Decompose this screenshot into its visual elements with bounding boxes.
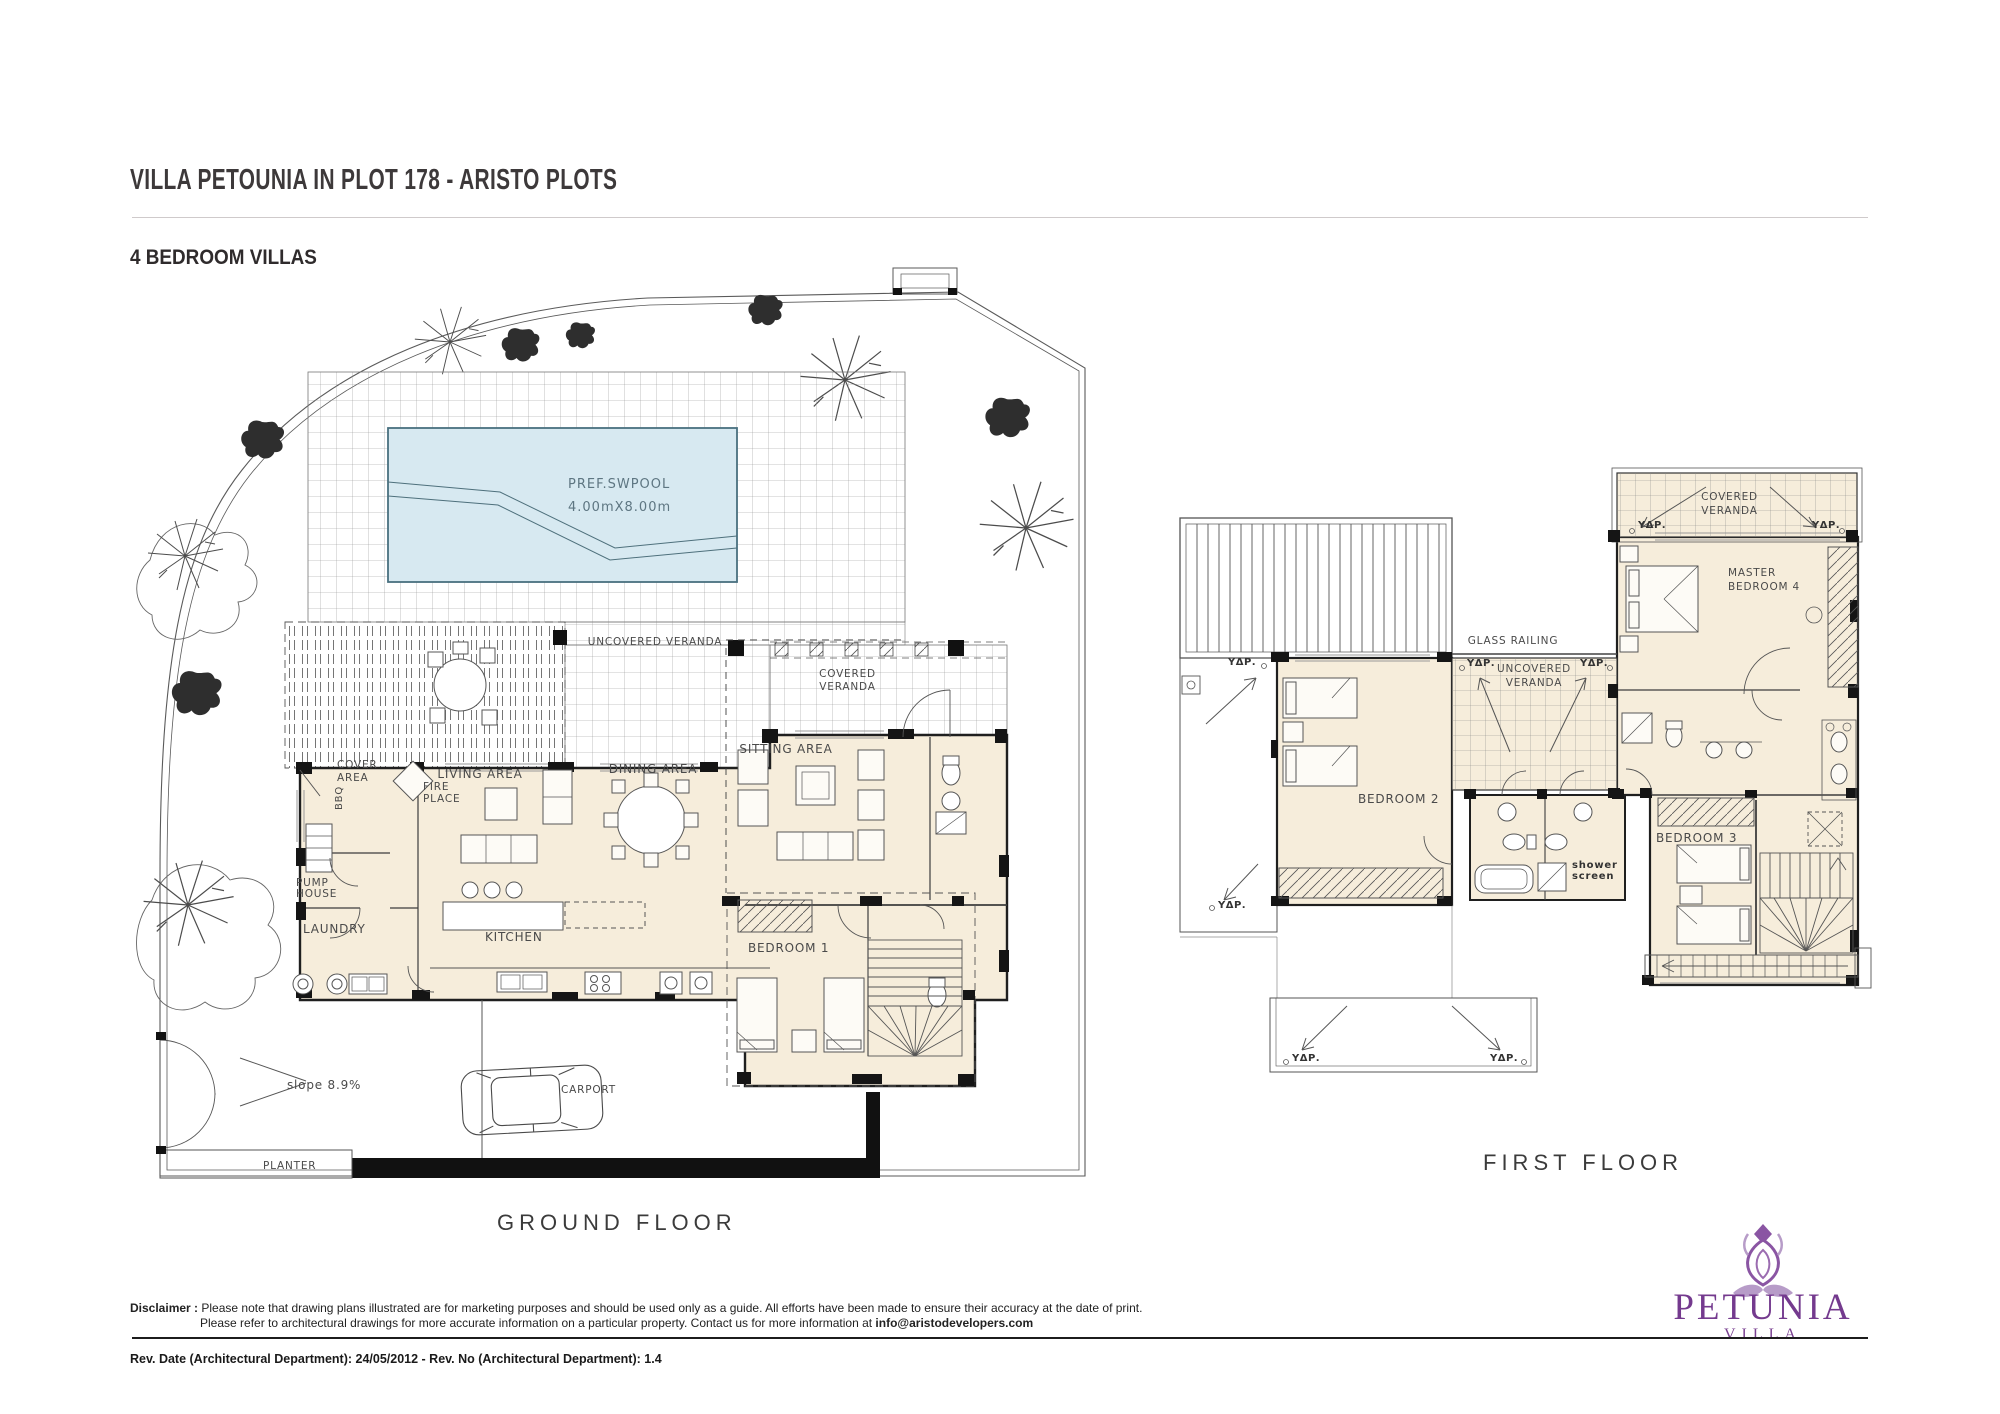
footer-divider bbox=[132, 1337, 1868, 1339]
label-living-area: LIVING AREA bbox=[421, 767, 539, 781]
garden-bed-outline bbox=[137, 524, 281, 1010]
label-kitchen: KITCHEN bbox=[485, 930, 543, 944]
disclaimer-line2: Please refer to architectural drawings f… bbox=[200, 1316, 1033, 1330]
disclaimer-line1: Disclaimer : Please note that drawing pl… bbox=[130, 1301, 1142, 1315]
label-ydr-3: ΥΔΡ. bbox=[1580, 658, 1608, 669]
ground-floor-plan bbox=[137, 268, 1086, 1178]
label-covered-veranda-g2: VERANDA bbox=[800, 681, 895, 693]
pergola-slats bbox=[1180, 518, 1452, 658]
plan-drawing bbox=[0, 0, 2000, 1414]
label-uncovered-veranda-f1: UNCOVERED bbox=[1484, 663, 1584, 675]
label-covered-veranda-f2: VERANDA bbox=[1682, 505, 1777, 517]
label-pool-size: 4.00mX8.00m bbox=[568, 500, 671, 515]
label-bedroom3: BEDROOM 3 bbox=[1656, 831, 1737, 845]
label-ydr-7: ΥΔΡ. bbox=[1292, 1053, 1320, 1064]
label-covered-veranda-g1: COVERED bbox=[800, 668, 895, 680]
first-floor-caption: FIRST FLOOR bbox=[1483, 1150, 1683, 1176]
label-fireplace-1: FIRE bbox=[423, 781, 449, 793]
label-uncovered-veranda-f2: VERANDA bbox=[1484, 677, 1584, 689]
label-pool: PREF.SWPOOL bbox=[568, 477, 670, 492]
label-ydr-6: ΥΔΡ. bbox=[1218, 900, 1246, 911]
label-uncovered-veranda-g: UNCOVERED VERANDA bbox=[565, 636, 745, 648]
label-master-bedroom-2: BEDROOM 4 bbox=[1728, 581, 1800, 593]
logo-type: VILLA bbox=[1653, 1326, 1873, 1344]
label-planter: PLANTER bbox=[263, 1160, 316, 1172]
label-slope: slope 8.9% bbox=[287, 1078, 361, 1092]
logo-name: PETUNIA bbox=[1653, 1286, 1873, 1329]
label-sitting-area: SITTING AREA bbox=[727, 742, 845, 756]
label-laundry: LAUNDRY bbox=[303, 922, 366, 936]
left-terrace bbox=[1180, 658, 1277, 937]
label-master-bedroom-1: MASTER bbox=[1728, 567, 1776, 579]
revision-note: Rev. Date (Architectural Department): 24… bbox=[130, 1352, 662, 1366]
label-ydr-4: ΥΔΡ. bbox=[1638, 520, 1666, 531]
page-title: VILLA PETOUNIA IN PLOT 178 - ARISTO PLOT… bbox=[130, 164, 617, 197]
page-subtitle: 4 BEDROOM VILLAS bbox=[130, 246, 317, 270]
label-cover-area-2: AREA bbox=[337, 772, 369, 784]
label-pump-house-2: HOUSE bbox=[296, 888, 337, 900]
disclaimer-email: info@aristodevelopers.com bbox=[875, 1316, 1033, 1330]
label-covered-veranda-f1: COVERED bbox=[1682, 491, 1777, 503]
label-cover-area-1: COVER bbox=[337, 759, 378, 771]
label-bedroom2: BEDROOM 2 bbox=[1358, 792, 1439, 806]
label-ydr-8: ΥΔΡ. bbox=[1490, 1053, 1518, 1064]
label-fireplace-2: PLACE bbox=[423, 793, 460, 805]
brochure-page: VILLA PETOUNIA IN PLOT 178 - ARISTO PLOT… bbox=[0, 0, 2000, 1414]
label-dining-area: DINING AREA bbox=[594, 762, 712, 776]
label-glass-railing: GLASS RAILING bbox=[1458, 635, 1568, 647]
label-carport: CARPORT bbox=[561, 1084, 616, 1096]
label-shower-screen-2: screen bbox=[1572, 871, 1614, 882]
label-bbq: BBQ bbox=[334, 786, 345, 810]
first-floor-plan bbox=[1180, 468, 1871, 1072]
pergola-area bbox=[285, 622, 565, 768]
label-ydr-2: ΥΔΡ. bbox=[1467, 658, 1495, 669]
header-divider bbox=[132, 217, 1868, 218]
label-shower-screen-1: shower bbox=[1572, 860, 1618, 871]
label-ydr-1: ΥΔΡ. bbox=[1228, 657, 1256, 668]
disclaimer-text-2: Please refer to architectural drawings f… bbox=[200, 1316, 875, 1330]
disclaimer-label: Disclaimer : bbox=[130, 1301, 198, 1315]
label-ydr-5: ΥΔΡ. bbox=[1812, 520, 1840, 531]
ground-floor-caption: GROUND FLOOR bbox=[497, 1210, 737, 1236]
disclaimer-text-1: Please note that drawing plans illustrat… bbox=[201, 1301, 1142, 1315]
label-bedroom1: BEDROOM 1 bbox=[748, 941, 829, 955]
swimming-pool bbox=[388, 428, 737, 582]
